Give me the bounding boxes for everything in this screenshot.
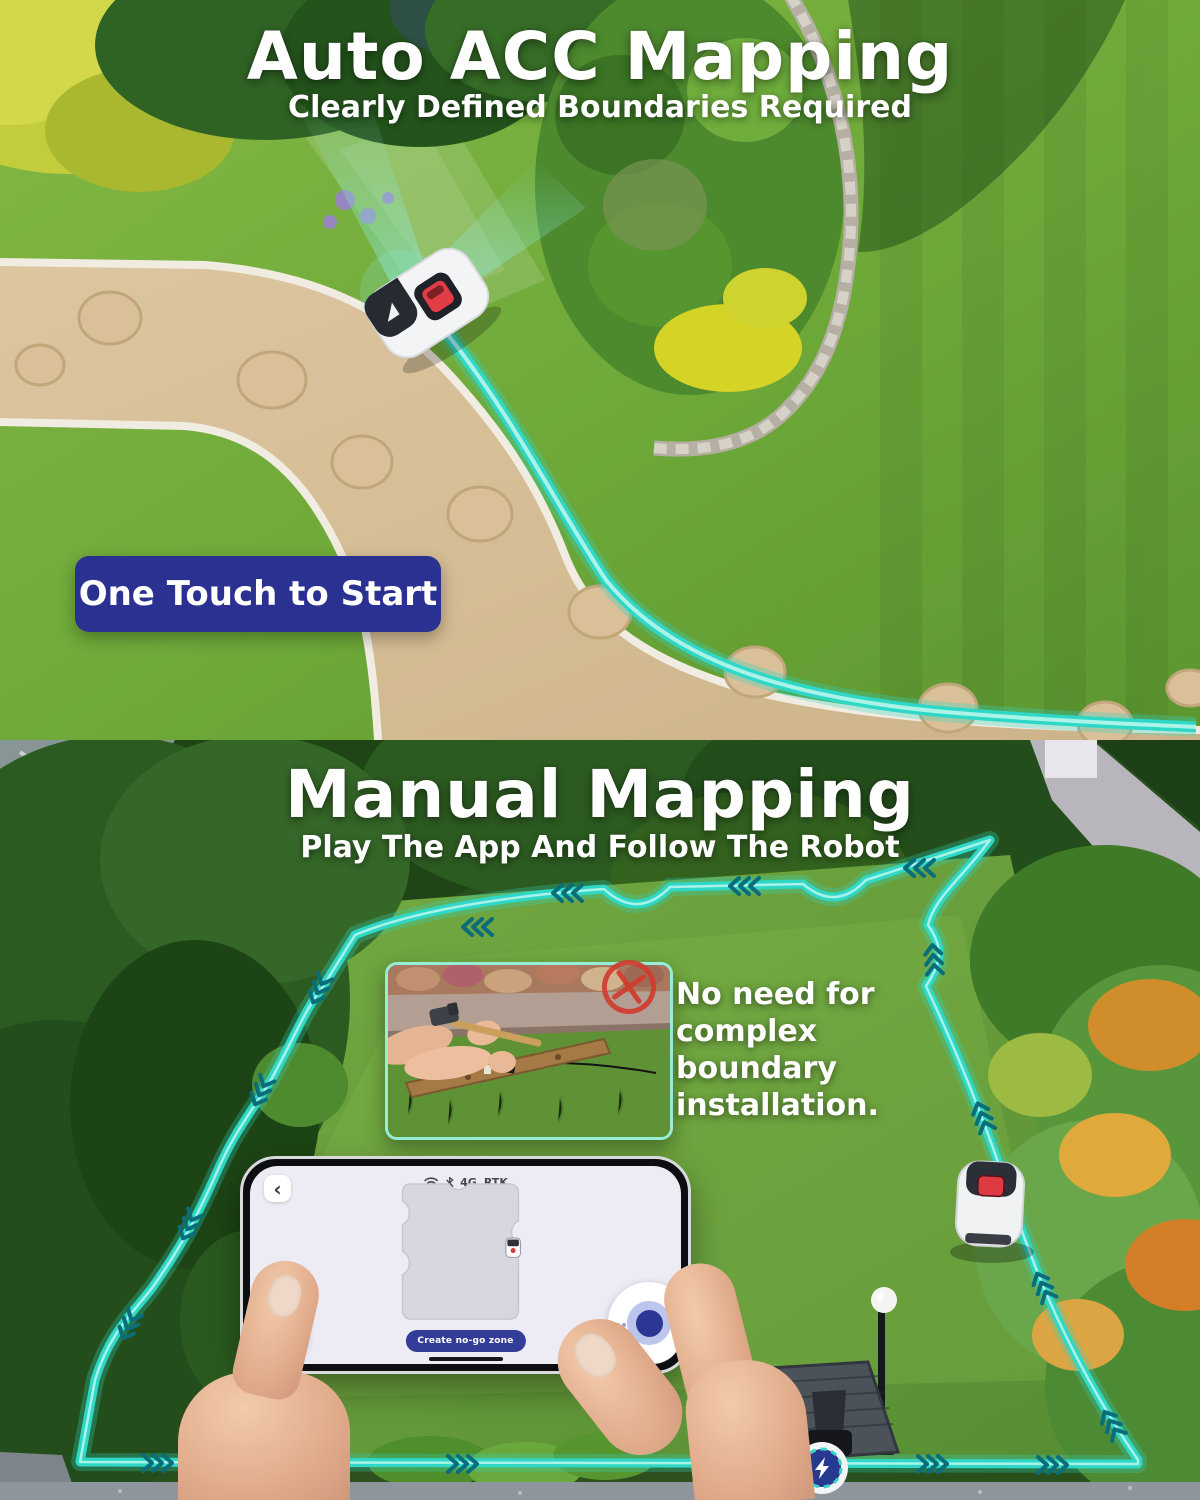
- auto-mapping-title: Auto ACC Mapping: [0, 18, 1200, 95]
- manual-mapping-subtitle: Play The App And Follow The Robot: [0, 830, 1200, 865]
- lawn-map: [398, 1182, 523, 1323]
- map-shape: [403, 1184, 519, 1319]
- robot-mower-bottom: [950, 1160, 1034, 1263]
- right-thumbnail: [567, 1326, 624, 1384]
- product-infographic: Auto ACC Mapping Clearly Defined Boundar…: [0, 0, 1200, 1500]
- back-button[interactable]: ‹: [264, 1175, 291, 1202]
- auto-mapping-subtitle: Clearly Defined Boundaries Required: [0, 90, 1200, 125]
- back-chevron-icon: ‹: [273, 1177, 281, 1201]
- home-indicator: [429, 1357, 503, 1361]
- create-no-go-zone-button[interactable]: Create no-go zone: [405, 1330, 525, 1352]
- one-touch-start-banner: One Touch to Start: [75, 556, 441, 632]
- left-thumbnail: [264, 1272, 305, 1320]
- joystick-knob[interactable]: [636, 1310, 663, 1337]
- manual-mapping-title: Manual Mapping: [0, 756, 1200, 833]
- map-robot-icon: [506, 1238, 520, 1257]
- robot-stop-button: [977, 1175, 1004, 1196]
- no-wire-callout: No need for complex boundary installatio…: [676, 976, 908, 1124]
